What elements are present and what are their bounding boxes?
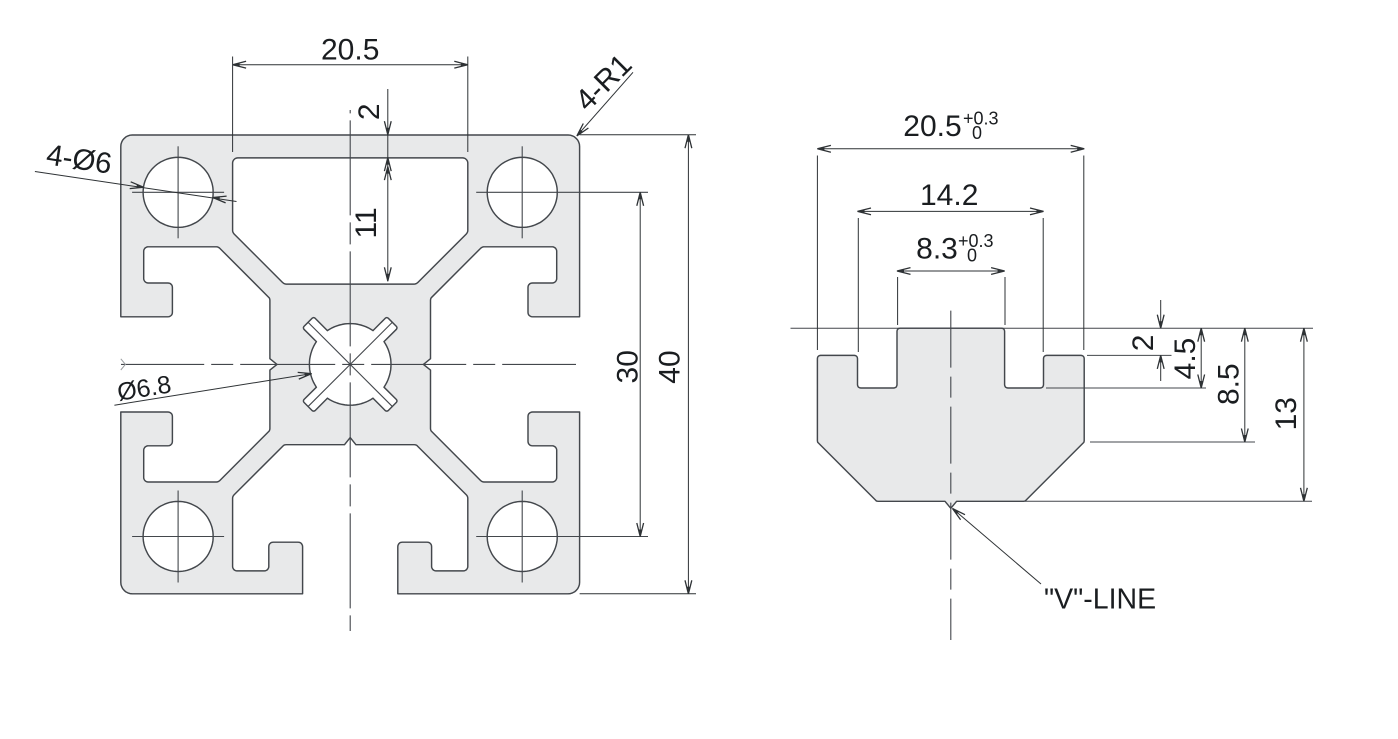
svg-text:"V"-LINE: "V"-LINE [1044,584,1156,616]
svg-text:13: 13 [1270,397,1303,430]
svg-text:0: 0 [967,246,977,266]
svg-text:30: 30 [612,350,645,383]
svg-text:14.2: 14.2 [920,179,978,212]
svg-text:20.5: 20.5 [321,34,379,67]
svg-text:4.5: 4.5 [1169,338,1202,380]
svg-text:8.5: 8.5 [1213,363,1246,405]
svg-text:20.5: 20.5 [903,110,961,143]
svg-text:11: 11 [350,207,383,238]
svg-text:8.3: 8.3 [916,233,958,266]
svg-text:40: 40 [653,350,686,383]
svg-text:0: 0 [972,123,982,143]
svg-text:2: 2 [1127,335,1160,352]
svg-text:2: 2 [353,103,386,120]
